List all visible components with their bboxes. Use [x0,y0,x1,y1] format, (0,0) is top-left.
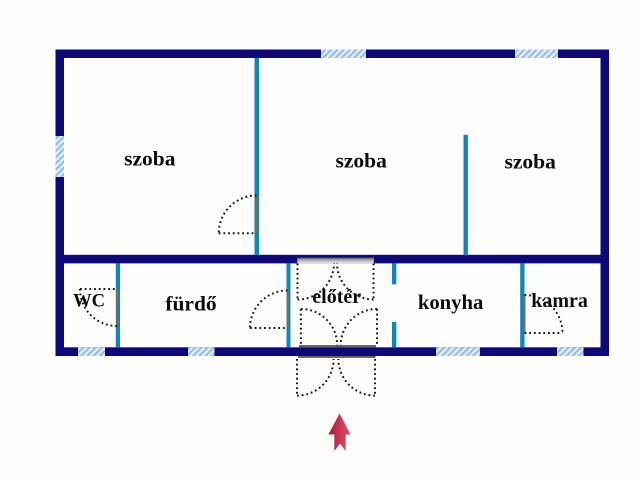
svg-text:konyha: konyha [418,292,484,314]
svg-text:szoba: szoba [505,149,557,173]
svg-text:WC: WC [73,291,105,311]
svg-text:fürdő: fürdő [165,291,217,315]
svg-text:szoba: szoba [336,148,388,172]
svg-text:kamra: kamra [531,290,588,312]
svg-text:szoba: szoba [124,147,176,171]
svg-text:előtér: előtér [312,286,361,308]
